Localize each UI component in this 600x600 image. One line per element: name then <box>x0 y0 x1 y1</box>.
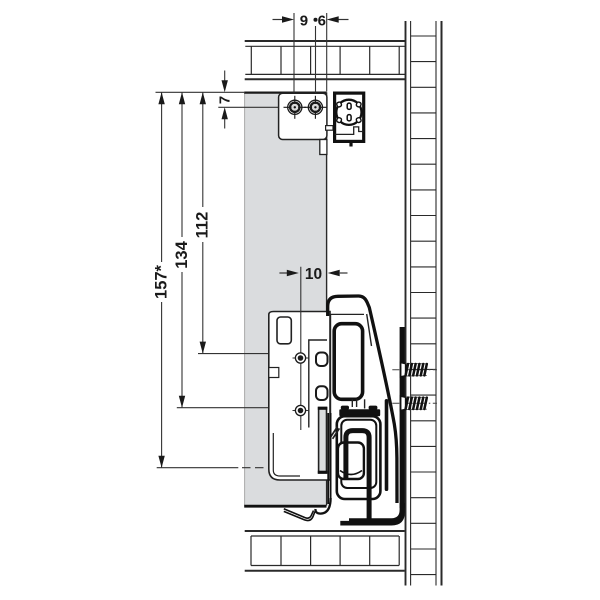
svg-text:7: 7 <box>216 96 233 104</box>
svg-text:10: 10 <box>305 266 322 283</box>
svg-text:157*: 157* <box>153 264 171 299</box>
svg-text:134: 134 <box>173 240 191 268</box>
svg-text:9: 9 <box>300 13 308 30</box>
svg-text:6: 6 <box>318 13 326 30</box>
svg-text:112: 112 <box>194 212 212 239</box>
